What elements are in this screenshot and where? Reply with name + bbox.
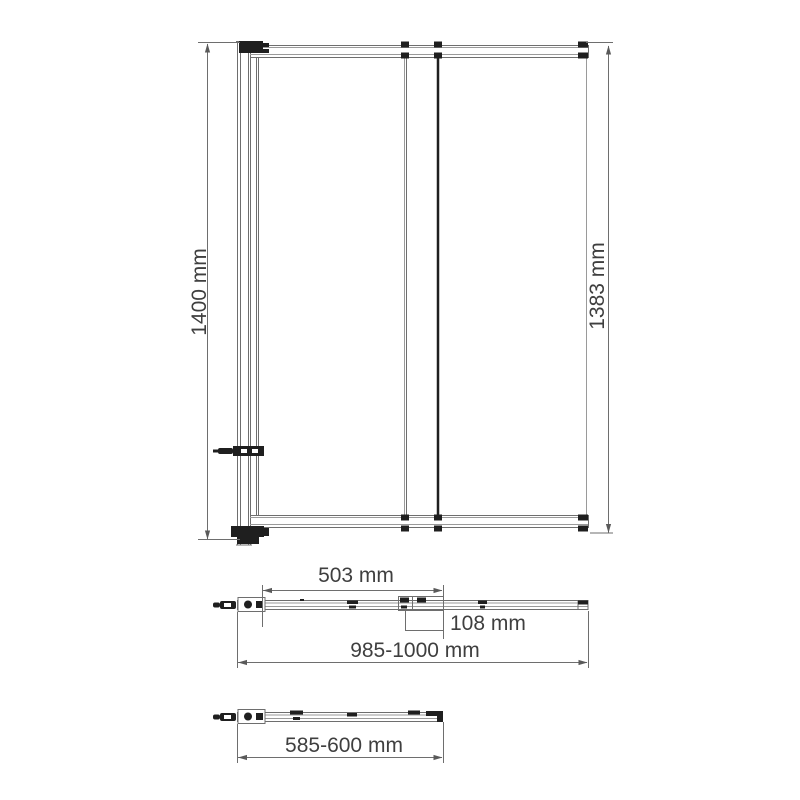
arrow-right-icon: [579, 660, 588, 665]
front-view: 1400 mm 1383 mm: [188, 41, 613, 545]
plan-view-folded: 585-600 mm: [213, 710, 444, 764]
dimension-height-glass: 1383 mm: [586, 43, 613, 534]
arrow-right-icon: [434, 755, 443, 760]
folded-width-label: 585-600 mm: [285, 734, 403, 757]
dimension-bracket-depth: 108 mm: [405, 611, 526, 635]
bracket-depth-label: 108 mm: [450, 612, 526, 635]
height-total-label: 1400 mm: [188, 248, 211, 336]
arrow-left-icon: [238, 755, 247, 760]
technical-drawing-canvas: 1400 mm 1383 mm: [0, 0, 800, 800]
arrow-right-icon: [434, 588, 443, 593]
rail-clamps: [401, 42, 588, 532]
arrow-up-icon: [205, 44, 210, 53]
arrow-down-icon: [205, 531, 210, 540]
plan-wall-hinge: [213, 598, 265, 612]
dimension-total-width: 985-1000 mm: [238, 611, 589, 668]
hinge-middle: [213, 446, 264, 456]
door-width-label: 503 mm: [318, 564, 394, 587]
arrow-down-icon: [606, 524, 611, 533]
dimension-height-total: 1400 mm: [188, 43, 240, 540]
technical-drawing-page: 1400 mm 1383 mm: [0, 0, 800, 800]
total-width-label: 985-1000 mm: [350, 639, 480, 662]
left-wall-profile: [236, 42, 259, 546]
glass-panel-edges: [405, 58, 587, 515]
hinge-bottom: [231, 526, 269, 544]
folded-wall-hinge: [213, 710, 265, 724]
height-glass-label: 1383 mm: [586, 242, 609, 330]
plan-view-extended: 503 mm 108 mm 985-1000 mm: [213, 564, 589, 668]
arrow-up-icon: [606, 46, 611, 55]
hinge-top: [239, 41, 269, 53]
dimension-folded-width: 585-600 mm: [238, 722, 444, 763]
arrow-left-icon: [263, 588, 272, 593]
arrow-left-icon: [238, 660, 247, 665]
bottom-rail: [250, 515, 589, 528]
top-rail: [250, 45, 589, 58]
